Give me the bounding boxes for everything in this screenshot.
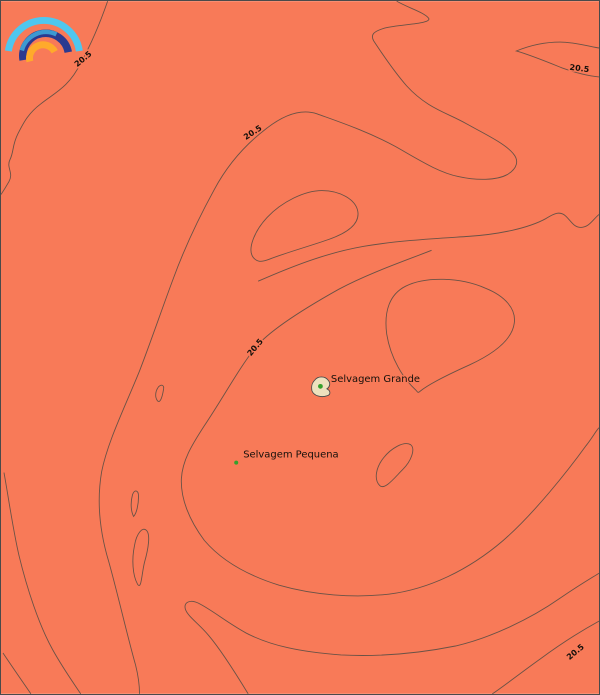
- selvagem-pequena-label: Selvagem Pequena: [243, 450, 338, 461]
- weather-map-window: 20.5 20.5 20.5 20.5 20.5 Selvagem Grande…: [0, 0, 600, 695]
- selvagem-grande-dot: [318, 384, 323, 389]
- selvagem-grande-label: Selvagem Grande: [331, 374, 420, 385]
- map-canvas[interactable]: 20.5 20.5 20.5 20.5 20.5 Selvagem Grande…: [1, 1, 599, 694]
- selvagem-pequena-dot: [234, 461, 238, 465]
